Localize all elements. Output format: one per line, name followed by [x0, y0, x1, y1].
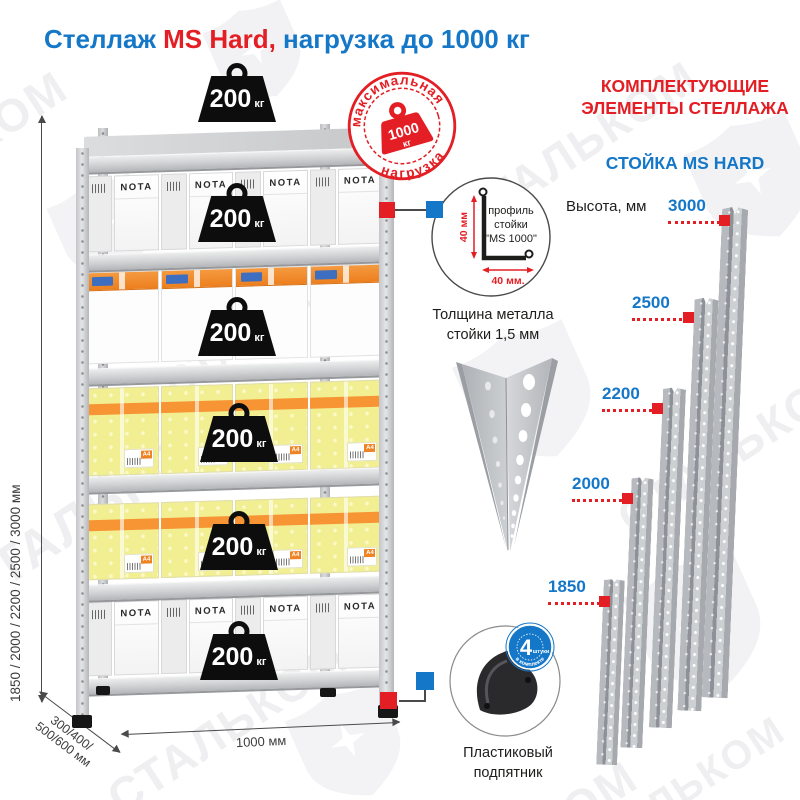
- height-dimension-line: [41, 116, 42, 702]
- a4-label: A4: [364, 444, 375, 452]
- page-title: Стеллаж MS Hard, нагрузка до 1000 кг: [44, 24, 530, 55]
- thickness-label: Толщина металла стойки 1,5 мм: [418, 306, 568, 345]
- weight-icon: 200кг: [198, 310, 276, 356]
- weight-icon: 200кг: [200, 634, 278, 680]
- a4-label: A4: [290, 551, 301, 559]
- post-height-label-2000: 2000: [572, 474, 610, 494]
- white-box: [161, 599, 187, 674]
- weight-icon: 200кг: [198, 196, 276, 242]
- white-box: [310, 595, 336, 670]
- weight-value: 200: [212, 416, 254, 462]
- weight-value: 200: [212, 524, 254, 570]
- a4-label: A4: [141, 555, 152, 563]
- weight-value: 200: [210, 196, 252, 242]
- title-part-2: MS Hard,: [163, 24, 283, 54]
- yellow-box: A4: [86, 386, 159, 476]
- components-header-line-1: КОМПЛЕКТУЮЩИЕ: [563, 76, 800, 98]
- profile-label-1: профиль: [488, 205, 534, 217]
- post-height-label-1850: 1850: [548, 577, 586, 597]
- weight-unit: кг: [256, 532, 266, 572]
- yellow-box: A4: [310, 380, 383, 470]
- yellow-box: A4: [310, 496, 383, 574]
- white-box: NOTA: [114, 174, 158, 251]
- title-part-1: Стеллаж: [44, 24, 163, 54]
- foot-label-line-1: Пластиковый: [438, 744, 578, 764]
- callout-marker-blue: [416, 672, 434, 690]
- post-height-label-3000: 3000: [668, 196, 706, 216]
- callout-marker-red: [652, 403, 663, 414]
- post-profile-diagram: 40 мм 40 мм. профиль стойки "MS 1000": [430, 176, 552, 298]
- yellow-box: A4: [86, 502, 159, 580]
- box-brand-label: NOTA: [190, 605, 232, 617]
- connector-line: [424, 690, 426, 702]
- weight-icon: 200кг: [200, 416, 278, 462]
- rack-post-front-left: [76, 148, 89, 718]
- heights-label: Высота, мм: [566, 198, 646, 215]
- profile-label-2: стойки: [494, 219, 528, 231]
- box-brand-label: NOTA: [115, 607, 157, 619]
- orange-lid-box: [310, 264, 383, 358]
- box-brand-label: NOTA: [339, 601, 381, 613]
- white-box: [310, 169, 336, 246]
- plastic-foot-label: Пластиковый подпятник: [438, 744, 578, 783]
- components-header-line-2: ЭЛЕМЕНТЫ СТЕЛЛАЖА: [563, 98, 800, 120]
- thickness-line-1: Толщина металла: [418, 306, 568, 326]
- box-brand-label: NOTA: [190, 179, 232, 191]
- profile-dim-horizontal: 40 мм.: [491, 275, 524, 287]
- box-brand-label: NOTA: [115, 181, 157, 193]
- quantity-badge: 4 штуки в комплекте: [506, 623, 554, 671]
- callout-marker-red: [622, 493, 633, 504]
- thickness-line-2: стойки 1,5 мм: [418, 326, 568, 346]
- post-height-label-2200: 2200: [602, 384, 640, 404]
- foot-label-line-2: подпятник: [438, 764, 578, 784]
- callout-marker-red: [683, 312, 694, 323]
- weight-value: 200: [210, 76, 252, 122]
- white-box: [86, 176, 112, 253]
- weight-unit: кг: [256, 424, 266, 464]
- a4-label: A4: [364, 549, 375, 557]
- white-box: [161, 173, 187, 250]
- post-perspective-image: [436, 352, 581, 570]
- profile-label-3: "MS 1000": [485, 233, 537, 245]
- weight-icon: 200кг: [198, 76, 276, 122]
- callout-marker-red: [719, 215, 730, 226]
- height-dimension-label: 1850 / 2000 / 2200 / 2500 / 3000 мм: [8, 116, 23, 702]
- badge-unit: штуки: [533, 649, 550, 655]
- plastic-foot-image: 4 штуки в комплекте: [446, 620, 566, 740]
- profile-dim-vertical: 40 мм: [458, 212, 470, 242]
- callout-marker-red: [599, 596, 610, 607]
- post-height-label-2500: 2500: [632, 293, 670, 313]
- box-brand-label: NOTA: [264, 603, 306, 615]
- badge-value: 4: [520, 635, 533, 660]
- white-box: NOTA: [114, 600, 158, 675]
- a4-label: A4: [141, 450, 152, 458]
- callout-marker-red: [380, 692, 397, 709]
- weight-value: 200: [212, 634, 254, 680]
- weight-value: 200: [210, 310, 252, 356]
- product-infographic: СТАЛЬКОМ СТАЛЬКОМ СТАЛЬКОМ СТАЛЬКОМ СТАЛ…: [0, 0, 800, 800]
- connector-line: [394, 209, 428, 211]
- rack-foot: [72, 715, 92, 728]
- weight-unit: кг: [254, 204, 264, 244]
- connector-line: [399, 700, 426, 702]
- white-box: NOTA: [338, 594, 382, 669]
- a4-label: A4: [290, 446, 301, 454]
- rack-post-front-right: [379, 138, 394, 708]
- weight-unit: кг: [256, 642, 266, 682]
- weight-icon: 200кг: [200, 524, 278, 570]
- weight-unit: кг: [254, 84, 264, 124]
- components-header: КОМПЛЕКТУЮЩИЕ ЭЛЕМЕНТЫ СТЕЛЛАЖА: [563, 76, 800, 120]
- title-part-3: нагрузка до 1000 кг: [283, 24, 530, 54]
- orange-lid-box: [86, 270, 159, 364]
- callout-marker-red: [379, 202, 395, 218]
- depth-dimension: 300/400/ 500/600 мм: [18, 692, 119, 781]
- callout-marker-blue: [426, 201, 443, 218]
- rack-foot: [320, 688, 336, 697]
- box-brand-label: NOTA: [264, 177, 306, 189]
- weight-unit: кг: [254, 318, 264, 358]
- components-subheader: СТОЙКА MS HARD: [563, 153, 800, 174]
- rack-foot: [96, 686, 110, 695]
- white-box: [86, 602, 112, 677]
